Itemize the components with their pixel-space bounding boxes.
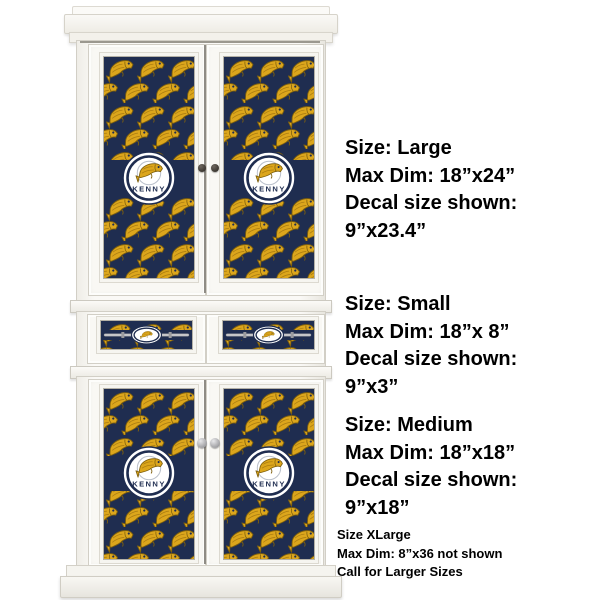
size-line: Call for Larger Sizes bbox=[337, 563, 502, 582]
size-line: Max Dim: 18”x24” bbox=[345, 163, 517, 191]
drawer-decal-left bbox=[100, 320, 193, 350]
door-decal-upper-left: KENNY bbox=[103, 56, 195, 279]
lower-right-door-knob bbox=[210, 438, 220, 448]
door-decal-lower-right: KENNY bbox=[223, 388, 315, 560]
cabinet-crown-shadow-line bbox=[80, 41, 320, 43]
cabinet-base-plinth bbox=[60, 576, 342, 598]
size-info-large: Size: Large Max Dim: 18”x24” Decal size … bbox=[345, 135, 517, 245]
product-mockup: KENNY KENNY KENNY KENNY Size: Large Max … bbox=[0, 0, 600, 600]
drawer-decal-right bbox=[222, 320, 315, 350]
door-decal-upper-right: KENNY bbox=[223, 56, 315, 279]
decal-art: KENNY bbox=[224, 57, 314, 278]
upper-right-door-knob bbox=[211, 164, 219, 172]
size-line: Max Dim: 18”x 8” bbox=[345, 319, 517, 347]
lower-left-door-knob bbox=[197, 438, 207, 448]
decal-name-text: KENNY bbox=[252, 185, 286, 194]
size-line: Size: Large bbox=[345, 135, 517, 163]
lower-door-seam bbox=[204, 380, 206, 564]
size-line: Size XLarge bbox=[337, 526, 502, 545]
decal-art bbox=[101, 321, 192, 349]
size-line: 9”x3” bbox=[345, 374, 517, 402]
size-line: Size: Medium bbox=[345, 412, 517, 440]
decal-art bbox=[223, 321, 314, 349]
size-line: Max Dim: 8”x36 not shown bbox=[337, 545, 502, 564]
size-line: 9”x18” bbox=[345, 495, 517, 523]
size-line: Decal size shown: bbox=[345, 467, 517, 495]
decal-name-text: KENNY bbox=[132, 480, 166, 489]
decal-art: KENNY bbox=[104, 57, 194, 278]
size-info-xlarge: Size XLarge Max Dim: 8”x36 not shown Cal… bbox=[337, 526, 502, 582]
decal-art: KENNY bbox=[104, 389, 194, 559]
door-decal-lower-left: KENNY bbox=[103, 388, 195, 560]
size-line: Max Dim: 18”x18” bbox=[345, 440, 517, 468]
cabinet-crown-middle bbox=[64, 14, 338, 34]
size-line: 9”x23.4” bbox=[345, 218, 517, 246]
size-line: Size: Small bbox=[345, 291, 517, 319]
decal-name-text: KENNY bbox=[252, 480, 286, 489]
size-line: Decal size shown: bbox=[345, 346, 517, 374]
decal-art: KENNY bbox=[224, 389, 314, 559]
decal-name-text: KENNY bbox=[132, 185, 166, 194]
size-info-medium: Size: Medium Max Dim: 18”x18” Decal size… bbox=[345, 412, 517, 522]
size-line: Decal size shown: bbox=[345, 190, 517, 218]
size-info-small: Size: Small Max Dim: 18”x 8” Decal size … bbox=[345, 291, 517, 401]
upper-left-door-knob bbox=[198, 164, 206, 172]
